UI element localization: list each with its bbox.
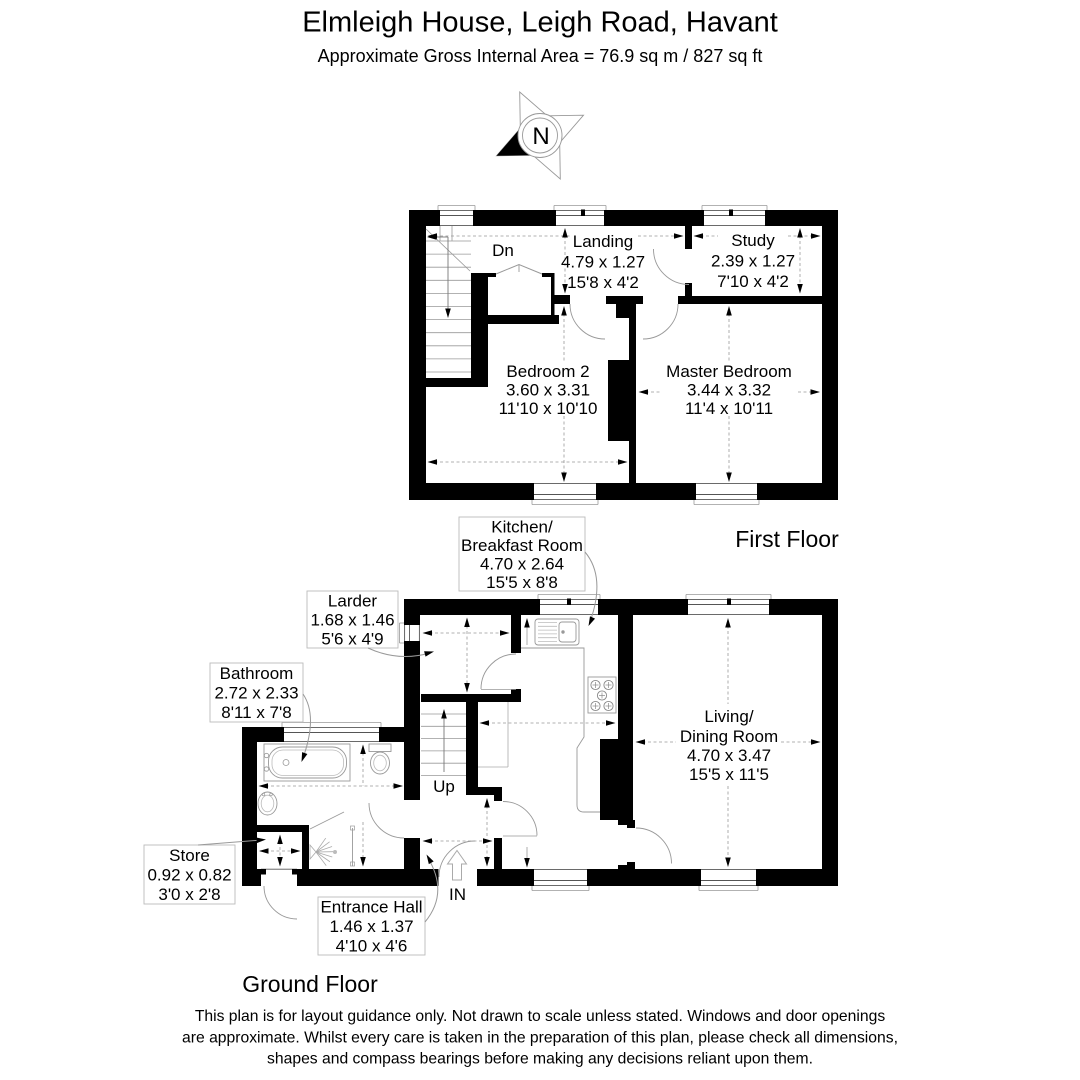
- svg-text:Bedroom 2: Bedroom 2: [506, 362, 589, 381]
- svg-text:0.92 x 0.82: 0.92 x 0.82: [147, 866, 231, 885]
- svg-text:Elmleigh House, Leigh Road, Ha: Elmleigh House, Leigh Road, Havant: [302, 7, 778, 39]
- svg-text:2.39 x 1.27: 2.39 x 1.27: [711, 252, 795, 271]
- svg-text:1.46 x 1.37: 1.46 x 1.37: [329, 917, 413, 936]
- svg-text:3.60 x 3.31: 3.60 x 3.31: [506, 381, 590, 400]
- svg-text:4.70 x 3.47: 4.70 x 3.47: [687, 746, 771, 765]
- svg-text:Approximate Gross Internal Are: Approximate Gross Internal Area = 76.9 s…: [318, 46, 763, 66]
- svg-text:Breakfast Room: Breakfast Room: [461, 536, 583, 555]
- svg-text:7'10 x 4'2: 7'10 x 4'2: [717, 272, 789, 291]
- svg-text:shapes and compass bearings be: shapes and compass bearings before makin…: [267, 1051, 813, 1068]
- svg-text:2.72 x 2.33: 2.72 x 2.33: [214, 684, 298, 703]
- svg-text:4'10 x 4'6: 4'10 x 4'6: [336, 936, 408, 955]
- svg-text:15'5 x 11'5: 15'5 x 11'5: [689, 765, 769, 784]
- svg-text:This plan is for layout guidan: This plan is for layout guidance only. N…: [195, 1008, 886, 1025]
- svg-text:3'0 x 2'8: 3'0 x 2'8: [158, 885, 220, 904]
- svg-text:Larder: Larder: [328, 592, 377, 611]
- svg-text:Study: Study: [731, 231, 775, 250]
- svg-text:Dn: Dn: [492, 241, 514, 260]
- svg-text:4.79 x 1.27: 4.79 x 1.27: [561, 253, 645, 272]
- svg-text:Bathroom: Bathroom: [220, 664, 294, 683]
- svg-text:Landing: Landing: [573, 232, 634, 251]
- svg-text:IN: IN: [449, 885, 466, 904]
- svg-text:5'6 x 4'9: 5'6 x 4'9: [321, 630, 383, 649]
- svg-text:Kitchen/: Kitchen/: [491, 517, 553, 536]
- svg-text:Master Bedroom: Master Bedroom: [666, 362, 792, 381]
- svg-text:N: N: [532, 123, 549, 150]
- svg-text:are approximate. Whilst every: are approximate. Whilst every care is ta…: [182, 1030, 898, 1047]
- svg-text:Dining Room: Dining Room: [680, 727, 778, 746]
- svg-text:Up: Up: [433, 777, 455, 796]
- svg-text:Ground Floor: Ground Floor: [242, 971, 378, 997]
- svg-text:Entrance Hall: Entrance Hall: [320, 898, 422, 917]
- svg-text:15'8 x 4'2: 15'8 x 4'2: [567, 273, 639, 292]
- svg-text:4.70 x 2.64: 4.70 x 2.64: [480, 554, 564, 573]
- svg-text:1.68 x 1.46: 1.68 x 1.46: [310, 611, 394, 630]
- svg-text:8'11 x 7'8: 8'11 x 7'8: [221, 703, 291, 722]
- svg-text:First Floor: First Floor: [735, 526, 839, 552]
- svg-text:15'5 x 8'8: 15'5 x 8'8: [486, 573, 558, 592]
- svg-text:11'10 x 10'10: 11'10 x 10'10: [499, 399, 598, 418]
- svg-text:11'4 x 10'11: 11'4 x 10'11: [685, 399, 773, 418]
- svg-text:3.44 x 3.32: 3.44 x 3.32: [687, 381, 771, 400]
- svg-text:Store: Store: [169, 846, 210, 865]
- svg-text:Living/: Living/: [704, 707, 753, 726]
